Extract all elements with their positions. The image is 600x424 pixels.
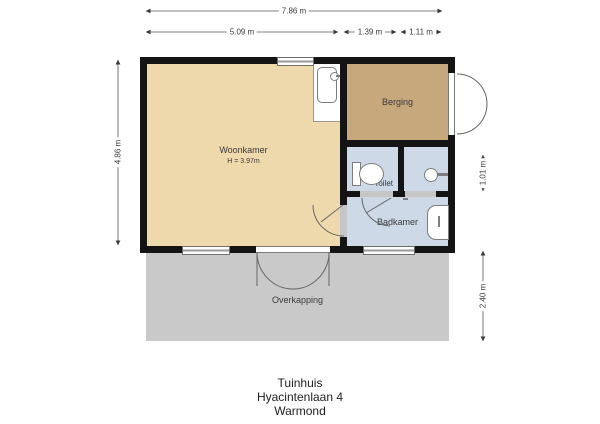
room-label-berging: Berging <box>382 97 413 107</box>
dim-label-building-height: 4.86 m <box>114 137 123 167</box>
shower-tap-stem <box>336 75 340 77</box>
toilet-wc-bowl-icon <box>359 163 384 185</box>
bathtub-detail <box>438 216 440 227</box>
plan-title: Tuinhuis <box>0 376 600 390</box>
dim-label-basin-width: 1.11 m <box>406 28 436 37</box>
dim-label-woonkamer-width: 5.09 m <box>227 28 257 37</box>
window-bottom-right <box>363 246 415 255</box>
room-label-woonkamer: Woonkamer <box>219 145 267 155</box>
wall-left <box>140 57 147 253</box>
small-dash-marker <box>403 198 408 200</box>
french-door-opening <box>256 246 330 253</box>
wall-toiletrow-bottom <box>340 191 455 197</box>
dim-label-toilet-width: 1.39 m <box>355 28 385 37</box>
area-overkapping: Overkapping <box>146 250 449 341</box>
window-top <box>277 57 314 66</box>
dim-label-overkapping-depth: 2.40 m <box>479 281 488 311</box>
wall-berging-bottom <box>340 140 455 147</box>
plan-city: Warmond <box>0 404 600 418</box>
room-woonkamer: Woonkamer H = 3.97m <box>147 64 340 246</box>
berging-door-opening <box>448 73 455 135</box>
plan-address: Hyacintenlaan 4 <box>0 390 600 404</box>
ceiling-height-note: H = 3.97m <box>227 158 260 165</box>
floorplan-canvas: Overkapping Woonkamer H = 3.97m Berging … <box>0 0 600 424</box>
hand-basin-stem <box>437 173 448 176</box>
wall-toilet-basin <box>398 147 404 197</box>
room-label-badkamer: Badkamer <box>377 217 418 227</box>
badkamer-door-opening <box>340 205 347 237</box>
dim-label-total-width: 7.86 m <box>279 7 309 16</box>
room-berging: Berging <box>347 64 448 140</box>
title-block: Tuinhuis Hyacintenlaan 4 Warmond <box>0 376 600 418</box>
hand-basin-icon <box>424 168 438 182</box>
door-swing-arc-berging-top <box>457 74 487 104</box>
badkamer-passage-opening <box>405 191 436 197</box>
toilet-door-opening <box>360 191 393 197</box>
room-label-overkapping: Overkapping <box>272 295 323 305</box>
window-bottom-left <box>182 246 230 255</box>
door-swing-arc-berging-bottom <box>457 104 487 134</box>
dim-label-toiletrow-height: 1.01 m <box>479 158 488 188</box>
